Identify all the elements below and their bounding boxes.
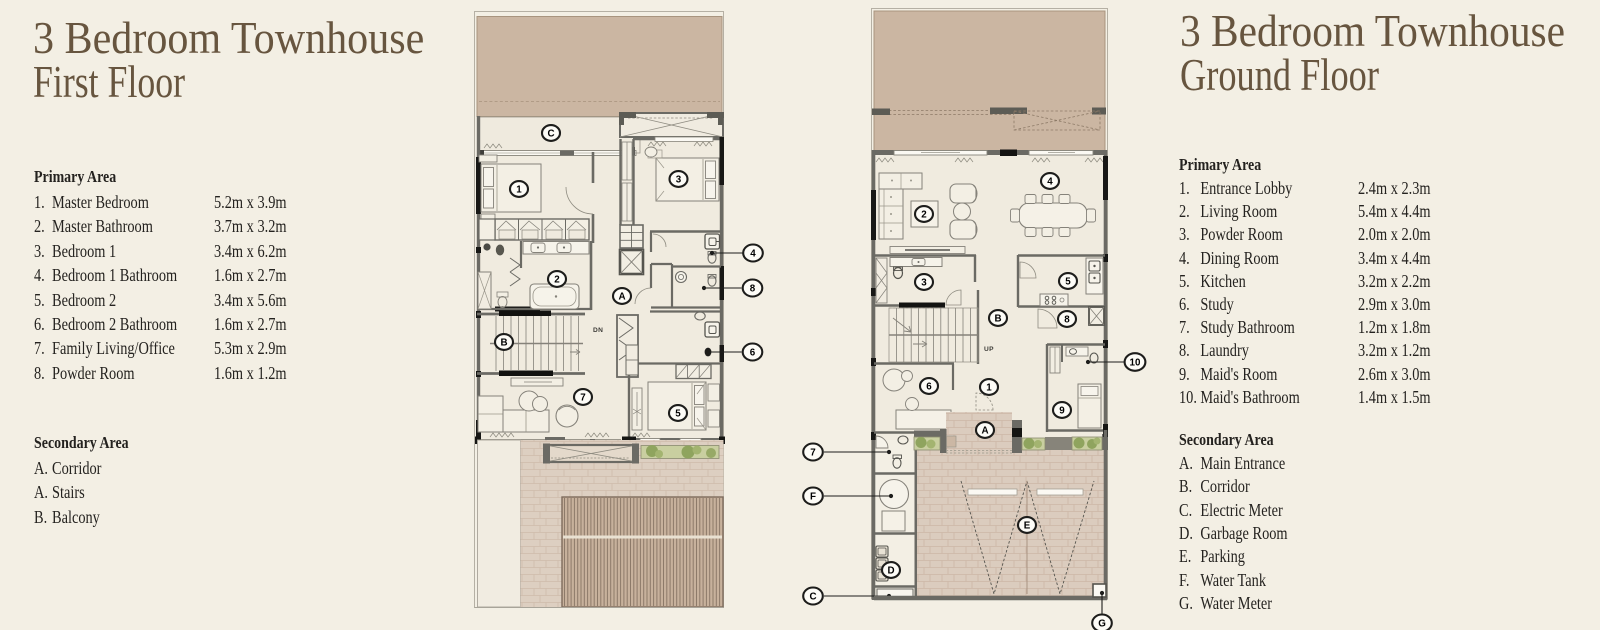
svg-text:2: 2 <box>554 275 560 286</box>
svg-text:B: B <box>994 314 1001 325</box>
svg-text:5: 5 <box>675 409 681 420</box>
svg-text:4: 4 <box>750 249 756 260</box>
svg-text:8: 8 <box>750 284 756 295</box>
svg-text:DN: DN <box>593 327 603 334</box>
svg-text:6: 6 <box>926 382 932 393</box>
svg-text:C: C <box>809 592 816 603</box>
svg-text:7: 7 <box>580 393 586 404</box>
svg-text:G: G <box>1098 619 1106 630</box>
svg-text:A: A <box>981 426 988 437</box>
svg-text:B: B <box>500 338 507 349</box>
svg-text:6: 6 <box>750 348 756 359</box>
svg-text:E: E <box>1024 521 1031 532</box>
svg-text:4: 4 <box>1047 177 1053 188</box>
svg-text:A: A <box>618 292 625 303</box>
svg-text:D: D <box>887 566 894 577</box>
svg-text:F: F <box>810 492 816 503</box>
svg-text:8: 8 <box>1064 315 1070 326</box>
svg-text:10: 10 <box>1130 358 1141 369</box>
svg-text:2: 2 <box>921 210 927 221</box>
svg-text:3: 3 <box>921 278 927 289</box>
svg-text:7: 7 <box>810 448 816 459</box>
svg-text:3: 3 <box>676 175 682 186</box>
svg-text:1: 1 <box>516 185 522 196</box>
svg-text:1: 1 <box>986 383 992 394</box>
svg-text:5: 5 <box>1065 277 1071 288</box>
svg-text:9: 9 <box>1059 406 1065 417</box>
svg-text:C: C <box>547 129 554 140</box>
svg-text:UP: UP <box>984 346 994 353</box>
